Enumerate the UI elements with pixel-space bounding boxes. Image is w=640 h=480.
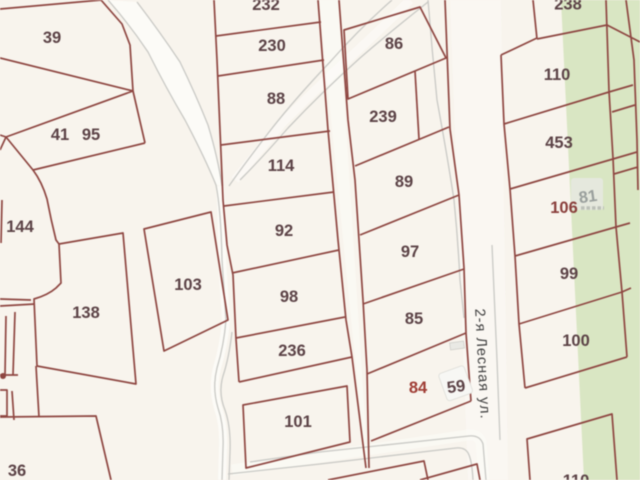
svg-text:101: 101 bbox=[284, 413, 312, 431]
svg-text:81: 81 bbox=[578, 187, 599, 207]
svg-text:236: 236 bbox=[278, 342, 306, 360]
svg-text:100: 100 bbox=[562, 332, 590, 350]
svg-text:98: 98 bbox=[280, 288, 298, 306]
svg-text:39: 39 bbox=[43, 29, 61, 47]
svg-text:144: 144 bbox=[6, 218, 34, 236]
svg-text:41: 41 bbox=[51, 126, 69, 144]
svg-text:89: 89 bbox=[395, 173, 413, 191]
svg-text:86: 86 bbox=[385, 35, 403, 53]
svg-text:92: 92 bbox=[275, 222, 293, 240]
svg-text:59: 59 bbox=[446, 377, 467, 397]
svg-text:138: 138 bbox=[72, 304, 100, 322]
svg-text:99: 99 bbox=[560, 265, 578, 283]
svg-text:88: 88 bbox=[267, 90, 285, 108]
svg-text:85: 85 bbox=[405, 310, 423, 328]
svg-text:95: 95 bbox=[82, 126, 100, 144]
svg-text:232: 232 bbox=[252, 0, 280, 14]
svg-text:230: 230 bbox=[258, 37, 286, 55]
svg-text:238: 238 bbox=[554, 0, 582, 14]
svg-text:114: 114 bbox=[268, 157, 295, 175]
svg-text:110: 110 bbox=[563, 472, 590, 480]
svg-text:84: 84 bbox=[409, 379, 428, 397]
svg-text:110: 110 bbox=[544, 66, 571, 84]
svg-text:103: 103 bbox=[174, 276, 202, 294]
svg-text:239: 239 bbox=[369, 108, 397, 126]
svg-text:106: 106 bbox=[550, 199, 578, 217]
svg-text:453: 453 bbox=[545, 134, 573, 152]
svg-text:36: 36 bbox=[8, 462, 26, 480]
svg-text:97: 97 bbox=[401, 243, 419, 261]
